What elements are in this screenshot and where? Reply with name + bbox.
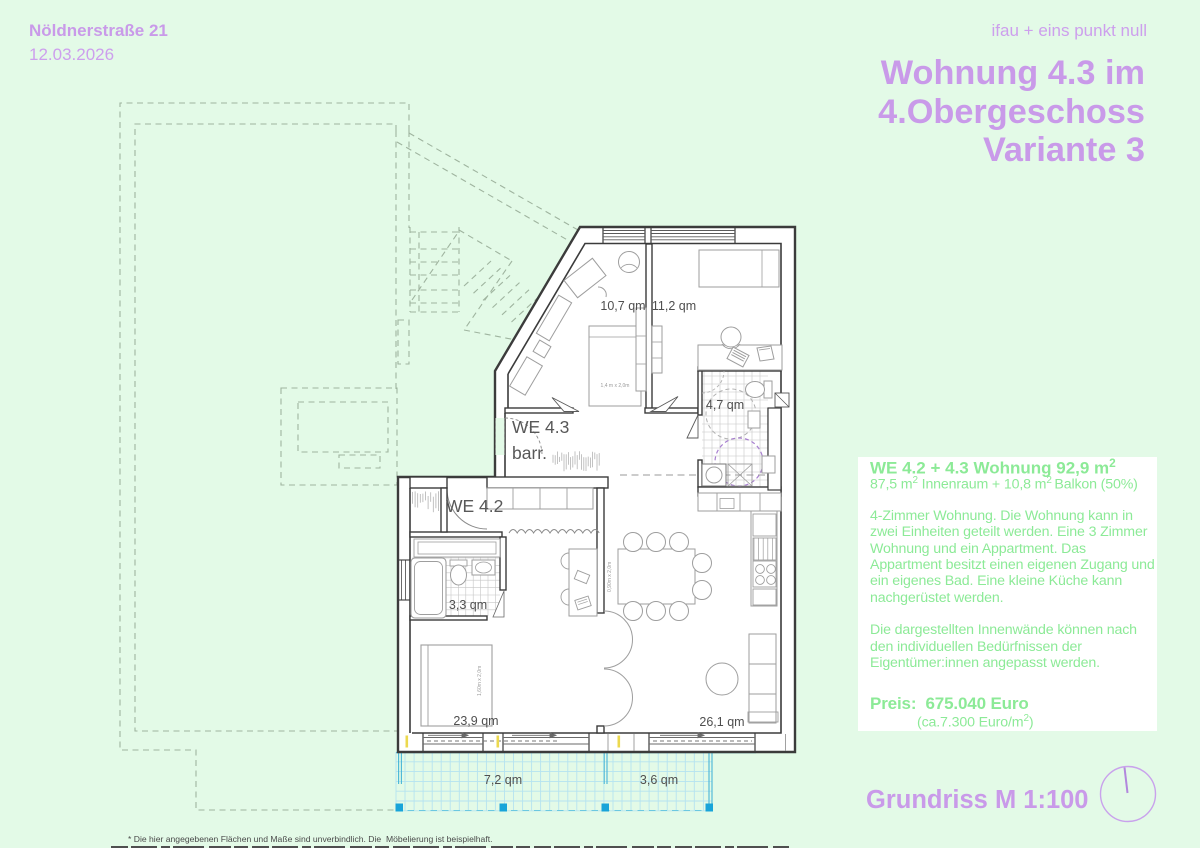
svg-text:3,6 qm: 3,6 qm [640,773,678,787]
svg-text:26,1 qm: 26,1 qm [699,715,744,729]
svg-text:23,9 qm: 23,9 qm [453,714,498,728]
svg-text:7,2 qm: 7,2 qm [484,773,522,787]
svg-text:1,60m x 2,0m: 1,60m x 2,0m [477,666,483,696]
svg-text:3,3 qm: 3,3 qm [449,598,487,612]
svg-text:barr.: barr. [512,443,547,463]
svg-text:WE 4.2: WE 4.2 [446,496,503,516]
svg-text:10,7 qm: 10,7 qm [600,299,645,313]
svg-text:0,90m x 2,0m: 0,90m x 2,0m [607,562,613,592]
svg-text:11,2 qm: 11,2 qm [652,299,696,313]
svg-text:WE 4.3: WE 4.3 [512,417,569,437]
svg-text:1,4 m x 2,0m: 1,4 m x 2,0m [601,383,630,389]
svg-text:4,7 qm: 4,7 qm [706,398,744,412]
